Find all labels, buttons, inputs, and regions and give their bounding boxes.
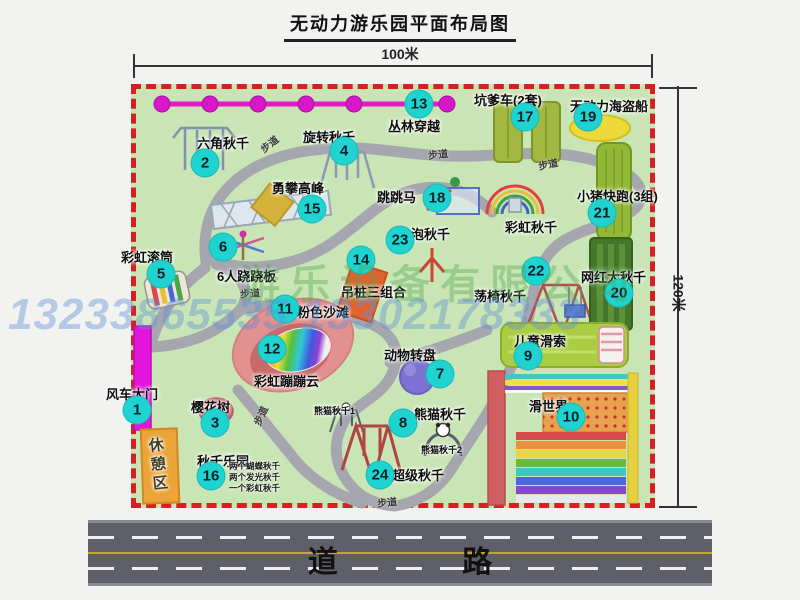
badge-13: 13 [405,90,434,119]
badge-9: 9 [514,342,543,371]
path-label-1: 步道 [427,145,448,162]
badge-4: 4 [330,137,359,166]
label-21: 小猪快跑(3组) [577,186,658,205]
extra-label-2: 熊猫秋千1 [314,404,355,417]
badge-7: 7 [426,360,455,389]
label-8: 熊猫秋千 [414,404,466,423]
path-label-5: 步道 [376,493,397,510]
road: 道 路 [88,520,712,586]
badge-16: 16 [197,462,226,491]
dim-tick-right-bottom [659,506,697,508]
extra-label-0: 彩虹秋千 [505,217,557,236]
sub-line: 两个蝴蝶秋千 [229,461,280,472]
dim-label-height: 120米 [669,274,689,311]
dim-tick-top-left [133,54,135,78]
badge-2: 2 [191,149,220,178]
badge-3: 3 [201,409,230,438]
sub-label-16: 两个蝴蝶秋千两个发光秋千一个彩虹秋千 [229,461,280,494]
badge-24: 24 [366,461,395,490]
page-title: 无动力游乐园平面布局图 [0,10,800,42]
label-12: 彩虹蹦蹦云 [254,371,319,390]
label-13: 丛林穿越 [388,116,440,135]
badge-18: 18 [423,184,452,213]
badge-15: 15 [298,195,327,224]
page-title-text: 无动力游乐园平面布局图 [284,10,516,42]
badge-23: 23 [386,226,415,255]
dim-label-width: 100米 [360,44,440,64]
road-label: 道 路 [88,537,712,581]
label-18: 跳跳马 [377,187,416,206]
dim-tick-right-top [659,87,697,89]
extra-label-3: 熊猫秋千2 [421,443,462,456]
badge-19: 19 [574,103,603,132]
label-7: 动物转盘 [384,345,436,364]
dim-line-top [133,65,653,67]
badge-6: 6 [209,233,238,262]
badge-1: 1 [123,396,152,425]
dim-tick-top-right [651,54,653,78]
badge-17: 17 [511,103,540,132]
badge-21: 21 [588,199,617,228]
label-24: 超级秋千 [392,465,444,484]
sub-line: 两个发光秋千 [229,472,280,483]
badge-10: 10 [557,403,586,432]
badge-5: 5 [147,260,176,289]
sub-line: 一个彩虹秋千 [229,483,280,494]
badge-8: 8 [389,409,418,438]
watermark-phone: 13233865535 13302178333 [8,290,582,340]
playground-map-page: 无动力游乐园平面布局图 100米 120米 [0,0,800,600]
